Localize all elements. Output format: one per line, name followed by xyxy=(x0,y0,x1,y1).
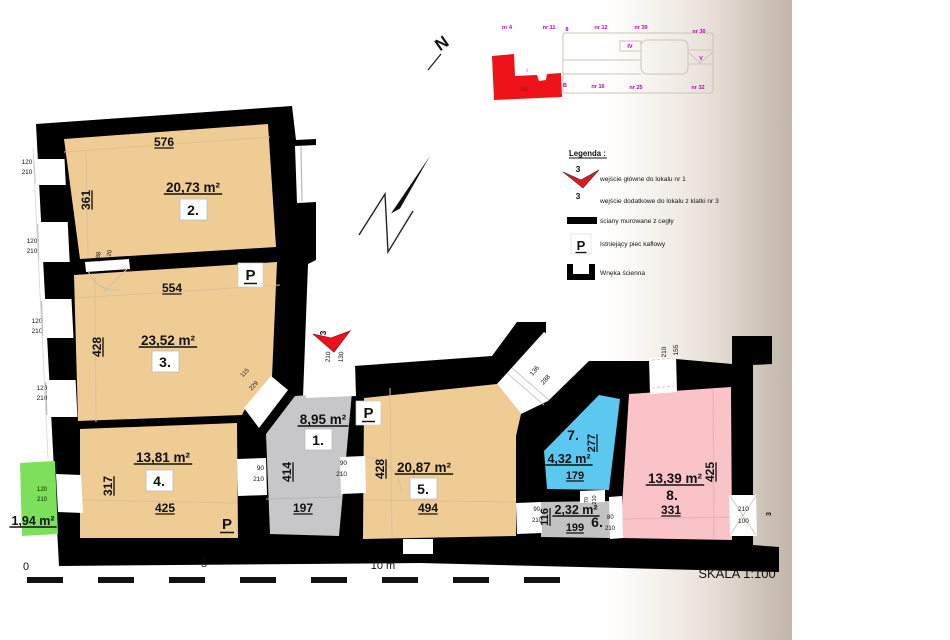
svg-text:8,95 m²: 8,95 m² xyxy=(300,412,347,427)
svg-text:3: 3 xyxy=(318,330,328,335)
svg-text:425: 425 xyxy=(703,462,717,482)
svg-text:ściany murowane z cegły: ściany murowane z cegły xyxy=(600,218,674,225)
svg-text:nr 39: nr 39 xyxy=(634,25,647,31)
svg-text:90: 90 xyxy=(340,460,348,467)
svg-text:428: 428 xyxy=(90,337,104,357)
svg-text:IV: IV xyxy=(627,44,633,50)
svg-text:3: 3 xyxy=(576,191,581,201)
svg-text:3.: 3. xyxy=(159,354,171,370)
svg-text:120: 120 xyxy=(37,487,48,493)
svg-text:210: 210 xyxy=(32,328,43,335)
svg-text:210: 210 xyxy=(37,497,48,503)
svg-text:nr 32: nr 32 xyxy=(691,85,704,91)
svg-text:8: 8 xyxy=(565,27,568,33)
svg-text:317: 317 xyxy=(101,476,115,496)
svg-text:SKALA 1:100: SKALA 1:100 xyxy=(698,566,775,581)
svg-text:210: 210 xyxy=(336,471,347,478)
svg-text:nr 4: nr 4 xyxy=(502,25,513,31)
svg-text:277: 277 xyxy=(586,434,598,452)
svg-text:130: 130 xyxy=(338,351,346,363)
svg-text:199: 199 xyxy=(566,522,584,534)
svg-text:3: 3 xyxy=(766,512,773,516)
svg-text:6.: 6. xyxy=(591,514,603,530)
svg-text:554: 554 xyxy=(162,281,182,295)
svg-text:Istniejący piec kaflowy: Istniejący piec kaflowy xyxy=(600,241,666,248)
svg-text:5: 5 xyxy=(201,558,207,570)
svg-text:10 m: 10 m xyxy=(371,560,395,572)
svg-text:20,73 m²: 20,73 m² xyxy=(166,180,221,195)
svg-text:Wnęka ścienna: Wnęka ścienna xyxy=(600,270,645,277)
svg-text:Legenda :: Legenda : xyxy=(569,149,606,158)
svg-text:1.: 1. xyxy=(312,432,324,448)
svg-text:4.: 4. xyxy=(153,473,165,489)
svg-text:0: 0 xyxy=(23,561,29,573)
svg-text:155: 155 xyxy=(673,344,680,355)
svg-text:197: 197 xyxy=(293,501,313,515)
svg-text:166: 166 xyxy=(520,87,529,93)
svg-text:80: 80 xyxy=(607,515,614,521)
svg-text:428: 428 xyxy=(373,459,387,479)
svg-text:425: 425 xyxy=(155,501,175,515)
svg-text:i: i xyxy=(526,68,527,74)
svg-text:nr 25: nr 25 xyxy=(629,85,642,91)
svg-text:1,94 m²: 1,94 m² xyxy=(11,514,54,528)
svg-text:2.: 2. xyxy=(187,202,199,218)
svg-text:179: 179 xyxy=(566,470,584,482)
svg-text:210: 210 xyxy=(325,351,333,363)
svg-text:nr 11: nr 11 xyxy=(543,25,556,31)
svg-text:20,87 m²: 20,87 m² xyxy=(397,460,452,475)
svg-text:210: 210 xyxy=(253,476,264,483)
svg-text:494: 494 xyxy=(418,501,438,515)
svg-text:210: 210 xyxy=(22,169,33,176)
svg-text:210: 210 xyxy=(37,395,48,402)
svg-text:361: 361 xyxy=(79,190,93,210)
svg-text:8.: 8. xyxy=(666,487,678,503)
svg-text:P: P xyxy=(222,516,232,533)
svg-text:414: 414 xyxy=(280,462,294,482)
svg-text:3: 3 xyxy=(576,164,581,174)
svg-text:210: 210 xyxy=(27,248,38,255)
svg-text:210: 210 xyxy=(661,346,668,357)
svg-text:V: V xyxy=(699,56,703,62)
svg-text:nr 30: nr 30 xyxy=(692,29,705,35)
svg-text:210: 210 xyxy=(738,506,749,513)
svg-text:nr 16: nr 16 xyxy=(591,84,604,90)
svg-text:210: 210 xyxy=(605,526,616,532)
svg-text:B: B xyxy=(563,83,567,89)
svg-text:120: 120 xyxy=(22,159,33,166)
svg-text:wejście główne do lokalu nr 1: wejście główne do lokalu nr 1 xyxy=(599,176,686,183)
svg-text:120: 120 xyxy=(37,385,48,392)
svg-text:23,52 m²: 23,52 m² xyxy=(141,333,196,348)
svg-text:116: 116 xyxy=(539,508,551,526)
svg-text:4,32 m²: 4,32 m² xyxy=(547,452,590,466)
svg-text:120: 120 xyxy=(27,238,38,245)
svg-text:wejście dodatkowe do lokalu z: wejście dodatkowe do lokalu z klatki nr … xyxy=(599,198,719,205)
svg-text:576: 576 xyxy=(154,135,174,149)
svg-text:13,39 m²: 13,39 m² xyxy=(648,471,703,486)
svg-text:331: 331 xyxy=(661,503,681,517)
svg-text:7.: 7. xyxy=(567,427,579,443)
svg-text:5.: 5. xyxy=(417,481,429,497)
svg-text:P: P xyxy=(363,405,373,422)
svg-text:90: 90 xyxy=(257,465,265,472)
svg-text:nr 12: nr 12 xyxy=(594,25,607,31)
svg-text:100: 100 xyxy=(738,518,749,525)
svg-text:P: P xyxy=(245,267,255,284)
svg-text:13,81 m²: 13,81 m² xyxy=(136,450,191,465)
svg-text:P: P xyxy=(577,238,586,253)
